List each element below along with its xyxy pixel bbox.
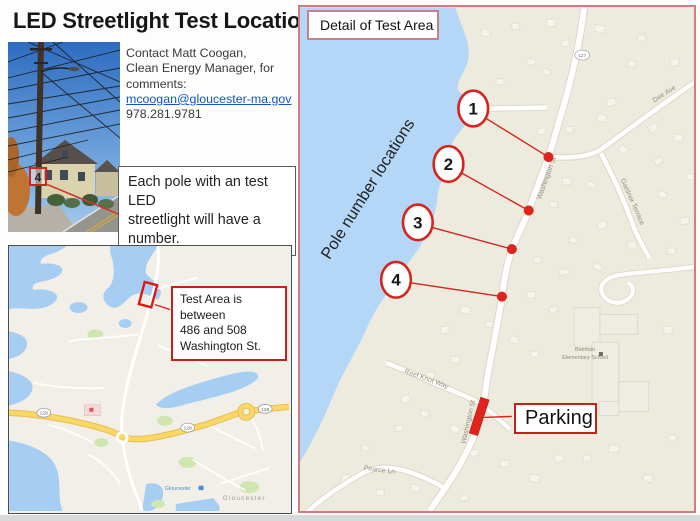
contact-block: Contact Matt Coogan, Clean Energy Manage… bbox=[126, 46, 298, 122]
pole-note-box: Each pole with an test LED streetlight w… bbox=[118, 166, 296, 256]
station-label: Gloucester bbox=[165, 486, 191, 492]
note-line1: Each pole with an test LED bbox=[128, 174, 268, 209]
callout-line1: Test Area is between bbox=[180, 292, 242, 322]
photo-pole-tag-number: 4 bbox=[35, 171, 42, 185]
pole-photo: 4 bbox=[8, 42, 120, 232]
detail-map-art: Beeman Elementary School bbox=[300, 7, 694, 511]
photo-streetlight-head bbox=[69, 67, 80, 71]
overview-hospital bbox=[84, 405, 100, 416]
slide-bottom-edge bbox=[0, 515, 700, 521]
pole-marker-4: 4 bbox=[381, 262, 411, 298]
pole-marker-number: 1 bbox=[469, 99, 478, 118]
slide-canvas: LED Streetlight Test Locations bbox=[0, 0, 700, 521]
page-title: LED Streetlight Test Locations bbox=[13, 8, 326, 34]
contact-line: Clean Energy Manager, for bbox=[126, 61, 298, 76]
contact-phone: 978.281.9781 bbox=[126, 107, 298, 122]
callout-line3: Washington St. bbox=[180, 339, 261, 353]
pole-marker-number: 2 bbox=[444, 155, 453, 174]
pole-marker-number: 4 bbox=[391, 271, 401, 290]
parking-label-box: Parking bbox=[514, 403, 597, 434]
parking-callout-line bbox=[484, 416, 512, 417]
route-shield-label: 127 bbox=[578, 53, 586, 59]
city-label: Gloucester bbox=[223, 495, 266, 502]
school-label-line1: Beeman bbox=[575, 347, 595, 353]
photo-pole-tag: 4 bbox=[30, 168, 46, 185]
detail-map: Beeman Elementary School bbox=[298, 5, 696, 513]
detail-route-shield: 127 bbox=[575, 50, 590, 60]
detail-map-title-box: Detail of Test Area bbox=[307, 10, 439, 40]
pole-marker-number: 3 bbox=[413, 213, 422, 232]
note-line2: streetlight will have a bbox=[128, 212, 261, 228]
route-shield-label: 128 bbox=[184, 426, 193, 432]
pole-marker-1: 1 bbox=[458, 91, 488, 127]
school-icon bbox=[599, 352, 603, 356]
station-icon bbox=[199, 486, 204, 490]
pole-photo-art: 4 bbox=[8, 42, 120, 232]
route-shield-label: 128 bbox=[40, 411, 49, 417]
pole-marker-3: 3 bbox=[403, 205, 433, 241]
contact-line: comments: bbox=[126, 77, 298, 92]
contact-email-link[interactable]: mcoogan@gloucester-ma.gov bbox=[126, 92, 291, 106]
callout-line2: 486 and 508 bbox=[180, 323, 247, 337]
pole-marker-2: 2 bbox=[434, 146, 464, 182]
test-area-callout: Test Area is between 486 and 508 Washing… bbox=[171, 286, 287, 361]
route-shield-label: 128 bbox=[261, 407, 270, 413]
overview-map: 128 128 128 Gloucester Gloucester Test A… bbox=[8, 245, 292, 514]
contact-line: Contact Matt Coogan, bbox=[126, 46, 298, 61]
